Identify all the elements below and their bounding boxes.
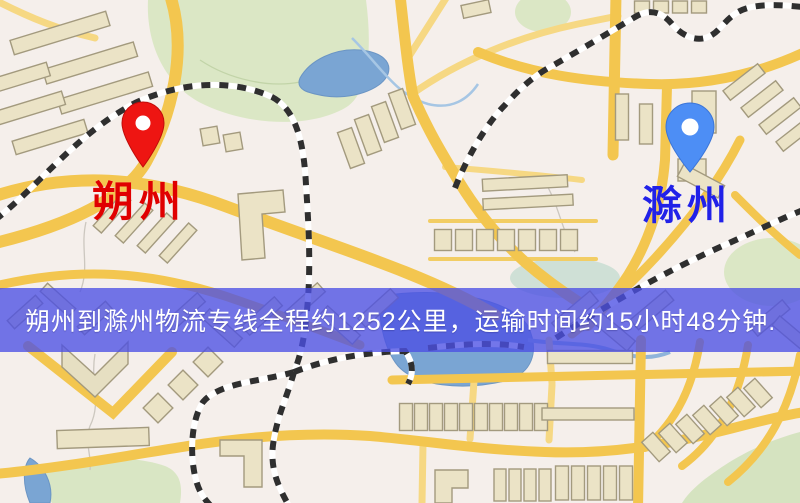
route-info-text: 朔州到滁州物流专线全程约1252公里，运输时间约15小时48分钟. (0, 302, 776, 338)
destination-city-label: 滁州 (642, 186, 732, 226)
route-info-banner: 朔州到滁州物流专线全程约1252公里，运输时间约15小时48分钟. (0, 288, 800, 352)
map-canvas (0, 0, 800, 503)
origin-city-label: 朔州 (92, 181, 186, 223)
map-screenshot: 朔州 滁州 朔州到滁州物流专线全程约1252公里，运输时间约15小时48分钟. (0, 0, 800, 503)
